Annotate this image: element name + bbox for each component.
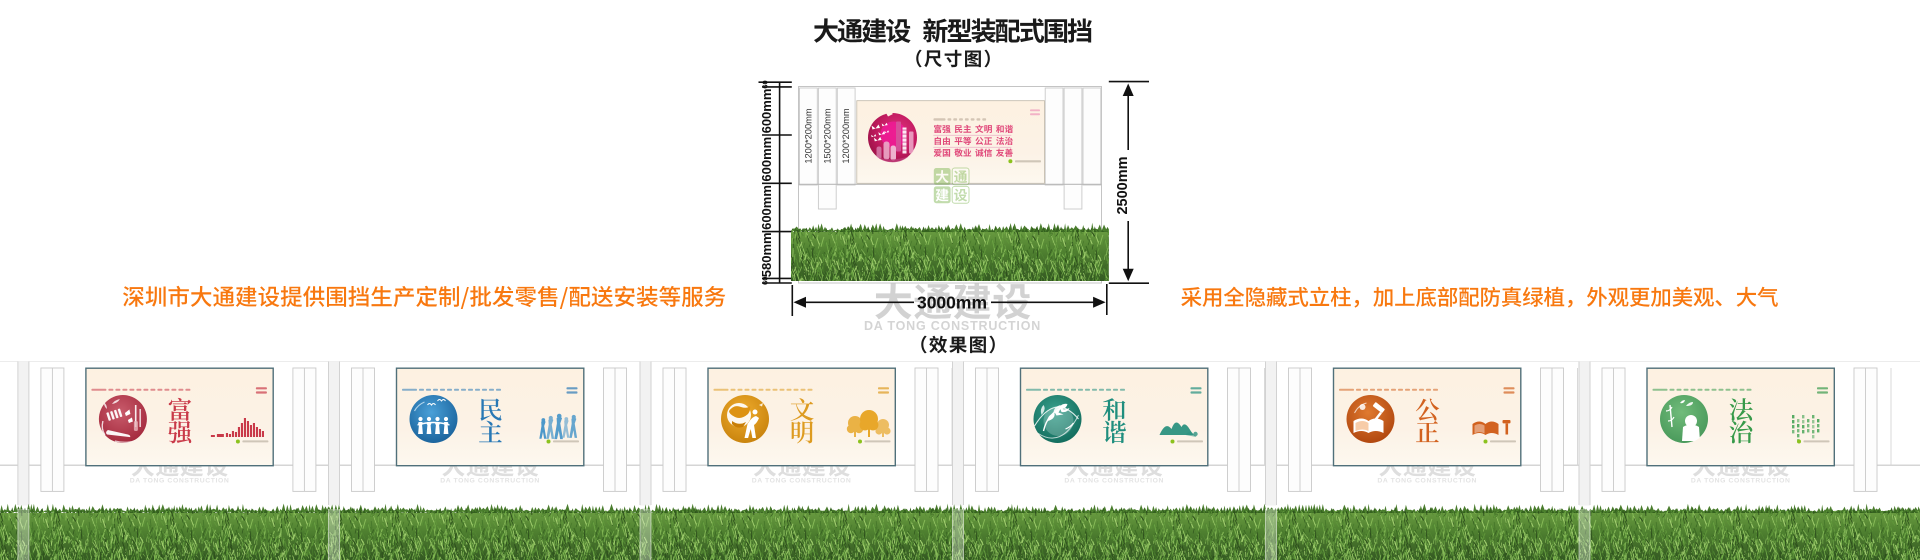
svg-text:600mm: 600mm xyxy=(759,185,774,230)
svg-text:DA TONG CONSTRUCTION: DA TONG CONSTRUCTION xyxy=(440,478,540,485)
svg-text:60: 60 xyxy=(761,277,770,285)
svg-text:60: 60 xyxy=(761,80,770,88)
svg-text:600mm: 600mm xyxy=(759,89,774,134)
svg-text:DA TONG CONSTRUCTION: DA TONG CONSTRUCTION xyxy=(130,478,230,485)
svg-text:DA TONG CONSTRUCTION: DA TONG CONSTRUCTION xyxy=(1377,478,1477,485)
svg-text:3000mm: 3000mm xyxy=(917,292,987,312)
svg-text:1200*200mm: 1200*200mm xyxy=(841,108,851,164)
svg-text:600mm: 600mm xyxy=(759,137,774,182)
svg-text:2500mm: 2500mm xyxy=(1115,156,1131,214)
svg-text:DA TONG CONSTRUCTION: DA TONG CONSTRUCTION xyxy=(1691,478,1791,485)
svg-text:DA TONG CONSTRUCTION: DA TONG CONSTRUCTION xyxy=(864,319,1041,333)
svg-text:DA TONG CONSTRUCTION: DA TONG CONSTRUCTION xyxy=(752,478,852,485)
svg-text:DA TONG CONSTRUCTION: DA TONG CONSTRUCTION xyxy=(1064,478,1164,485)
svg-text:1500*200mm: 1500*200mm xyxy=(822,108,832,164)
svg-text:580mm: 580mm xyxy=(759,232,774,277)
svg-text:1200*200mm: 1200*200mm xyxy=(803,108,813,164)
